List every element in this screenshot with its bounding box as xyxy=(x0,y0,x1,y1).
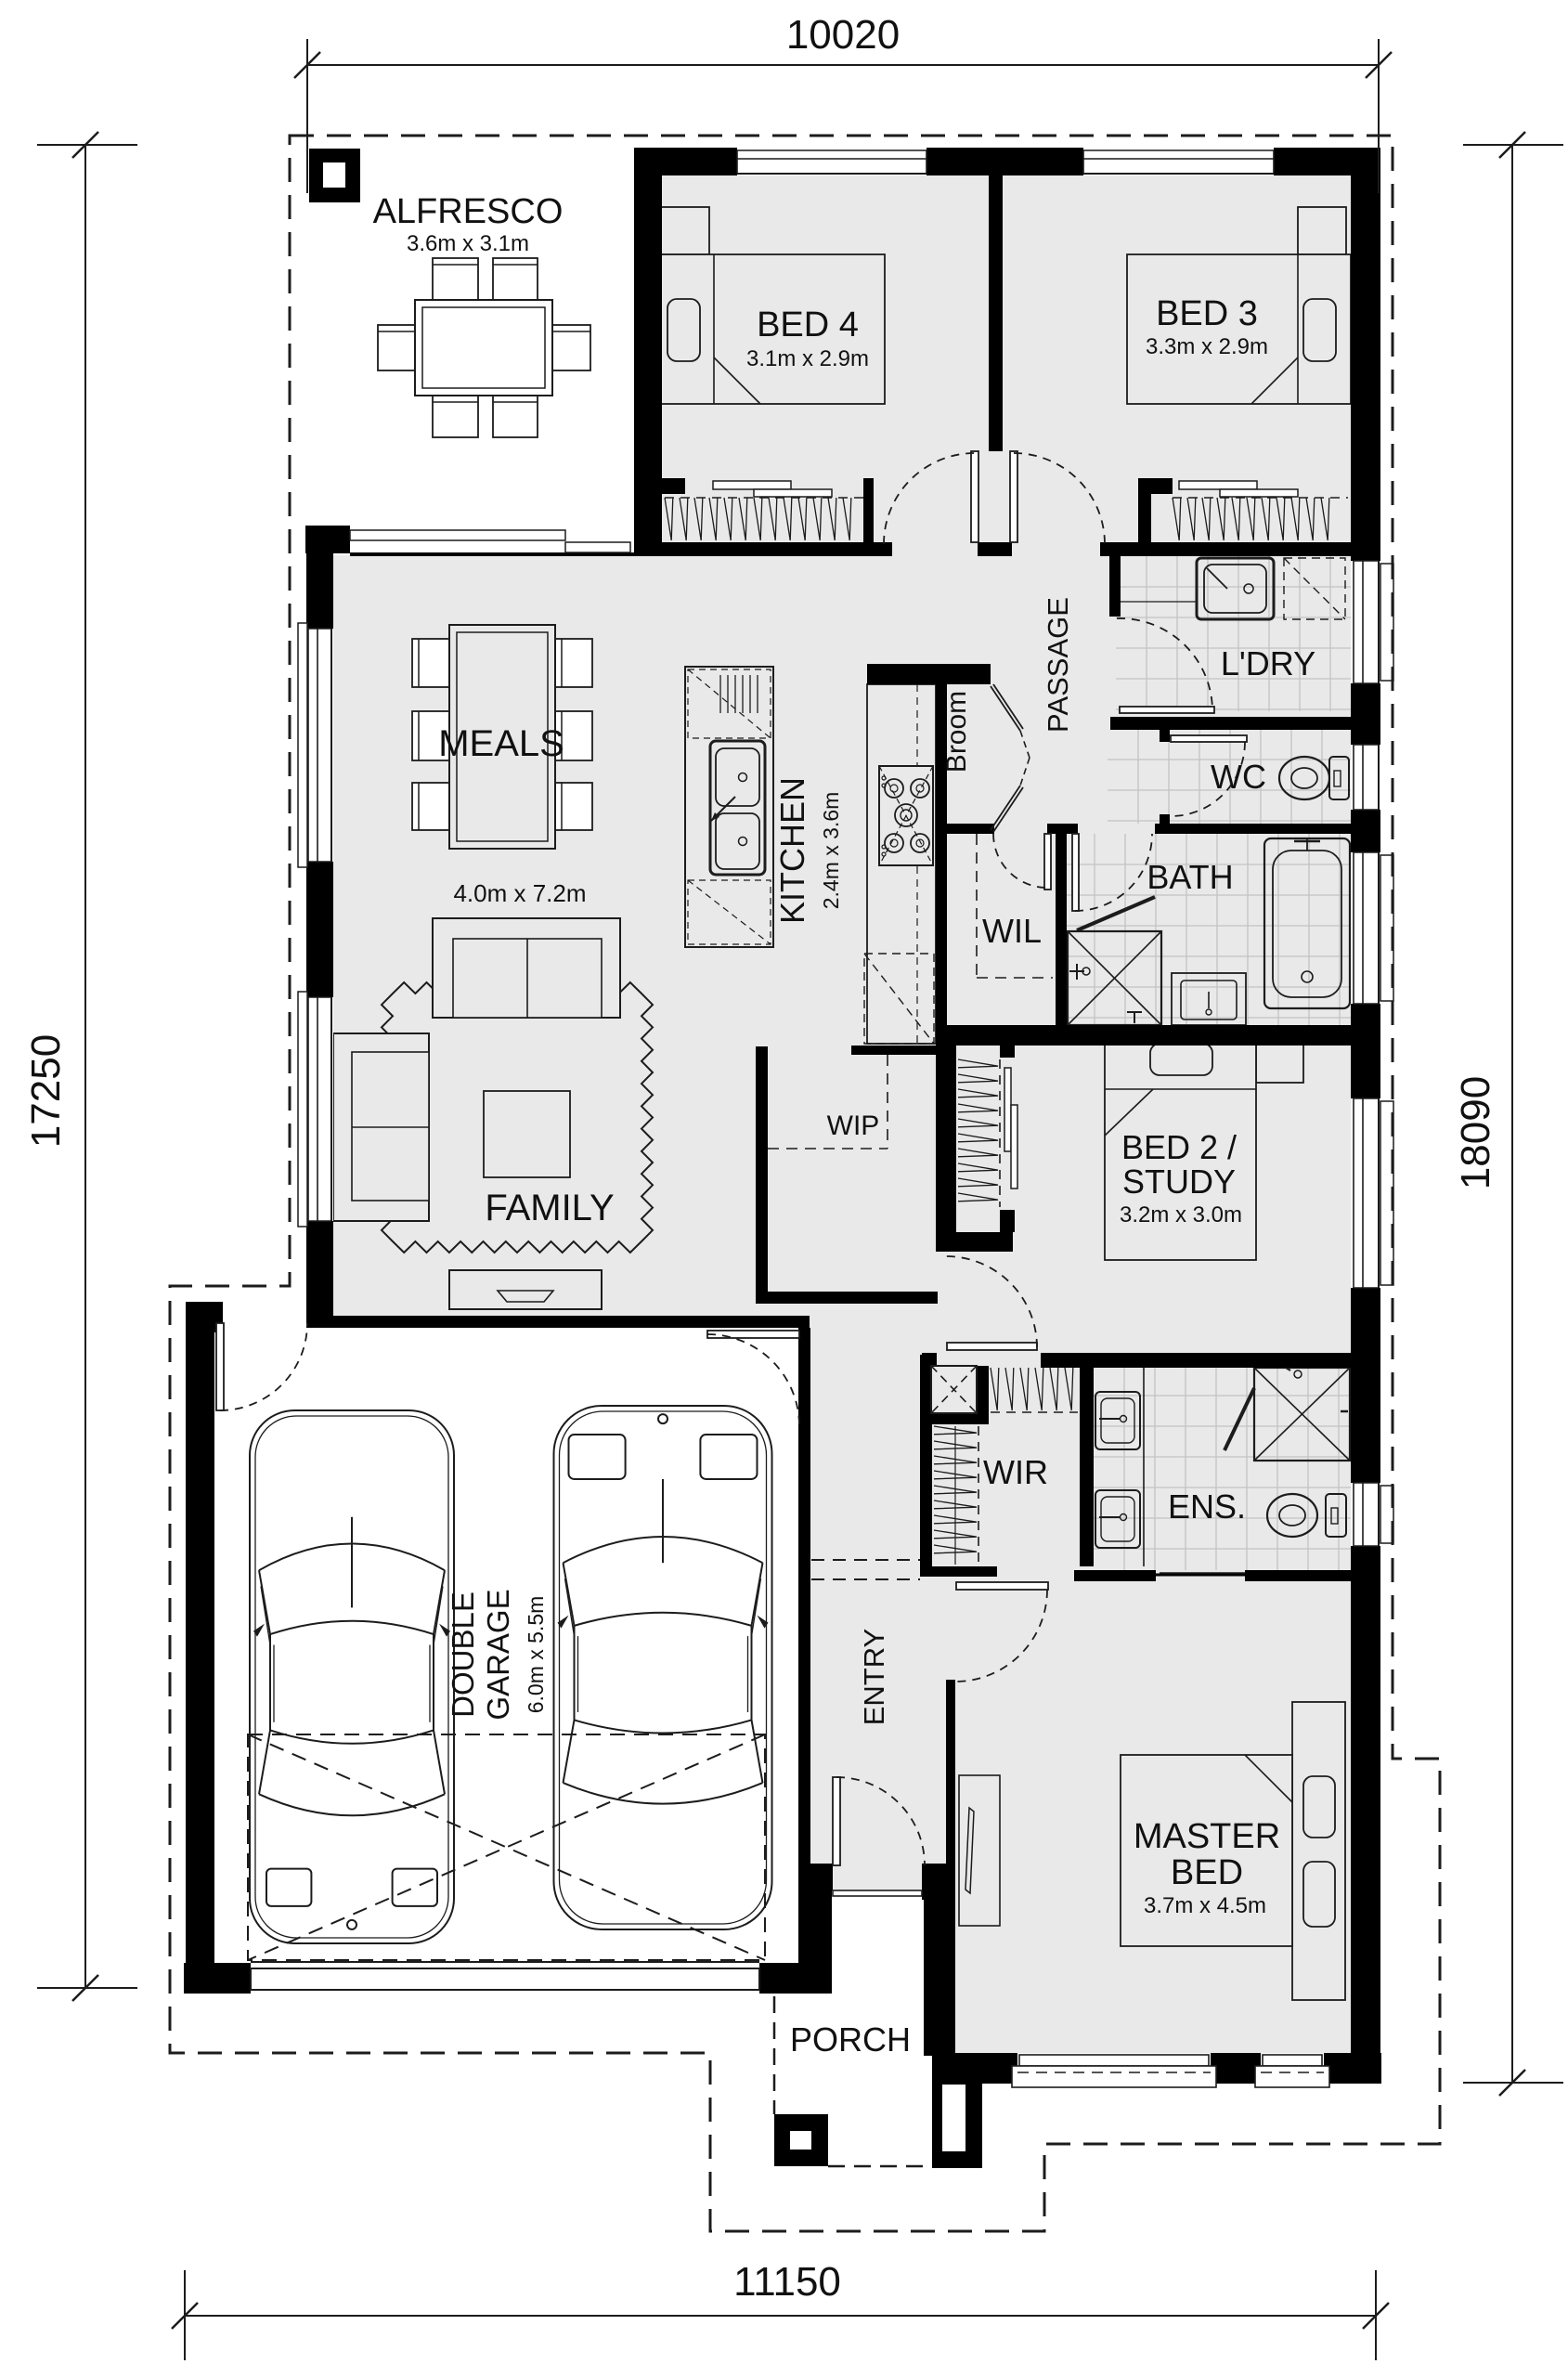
svg-text:3.1m x 2.9m: 3.1m x 2.9m xyxy=(746,346,869,371)
svg-text:3.7m x 4.5m: 3.7m x 4.5m xyxy=(1144,1893,1266,1918)
svg-text:BATH: BATH xyxy=(1147,858,1233,896)
svg-text:L'DRY: L'DRY xyxy=(1221,644,1315,682)
svg-text:BED: BED xyxy=(1171,1853,1243,1892)
svg-text:WIP: WIP xyxy=(827,1111,880,1141)
svg-text:3.3m x 2.9m: 3.3m x 2.9m xyxy=(1146,334,1268,359)
svg-text:11150: 11150 xyxy=(733,2259,841,2305)
svg-text:WC: WC xyxy=(1211,758,1266,796)
svg-text:2.4m x 3.6m: 2.4m x 3.6m xyxy=(819,792,843,910)
svg-text:6.0m x 5.5m: 6.0m x 5.5m xyxy=(524,1596,548,1714)
svg-text:3.2m x 3.0m: 3.2m x 3.0m xyxy=(1120,1202,1242,1227)
svg-text:ENTRY: ENTRY xyxy=(858,1629,890,1726)
svg-text:PASSAGE: PASSAGE xyxy=(1042,597,1074,733)
svg-text:STUDY: STUDY xyxy=(1122,1163,1236,1201)
svg-text:18090: 18090 xyxy=(1453,1076,1498,1189)
svg-text:Broom: Broom xyxy=(941,691,972,773)
svg-text:ALFRESCO: ALFRESCO xyxy=(373,192,564,231)
svg-text:WIL: WIL xyxy=(982,912,1042,950)
svg-text:PORCH: PORCH xyxy=(790,2020,911,2059)
svg-text:GARAGE: GARAGE xyxy=(481,1589,515,1720)
svg-text:ENS.: ENS. xyxy=(1168,1487,1246,1526)
svg-text:BED 2 /: BED 2 / xyxy=(1121,1128,1237,1166)
svg-text:KITCHEN: KITCHEN xyxy=(773,777,811,924)
svg-text:10020: 10020 xyxy=(786,12,900,58)
svg-text:MEALS: MEALS xyxy=(438,723,564,764)
svg-text:3.6m x 3.1m: 3.6m x 3.1m xyxy=(407,231,529,256)
svg-text:BED 3: BED 3 xyxy=(1156,294,1258,333)
svg-text:4.0m x 7.2m: 4.0m x 7.2m xyxy=(453,879,586,907)
svg-text:17250: 17250 xyxy=(23,1034,69,1148)
svg-text:BED 4: BED 4 xyxy=(757,305,859,344)
svg-text:MASTER: MASTER xyxy=(1134,1817,1280,1856)
svg-text:FAMILY: FAMILY xyxy=(485,1188,614,1228)
svg-text:WIR: WIR xyxy=(983,1453,1048,1491)
svg-text:DOUBLE: DOUBLE xyxy=(446,1591,480,1718)
